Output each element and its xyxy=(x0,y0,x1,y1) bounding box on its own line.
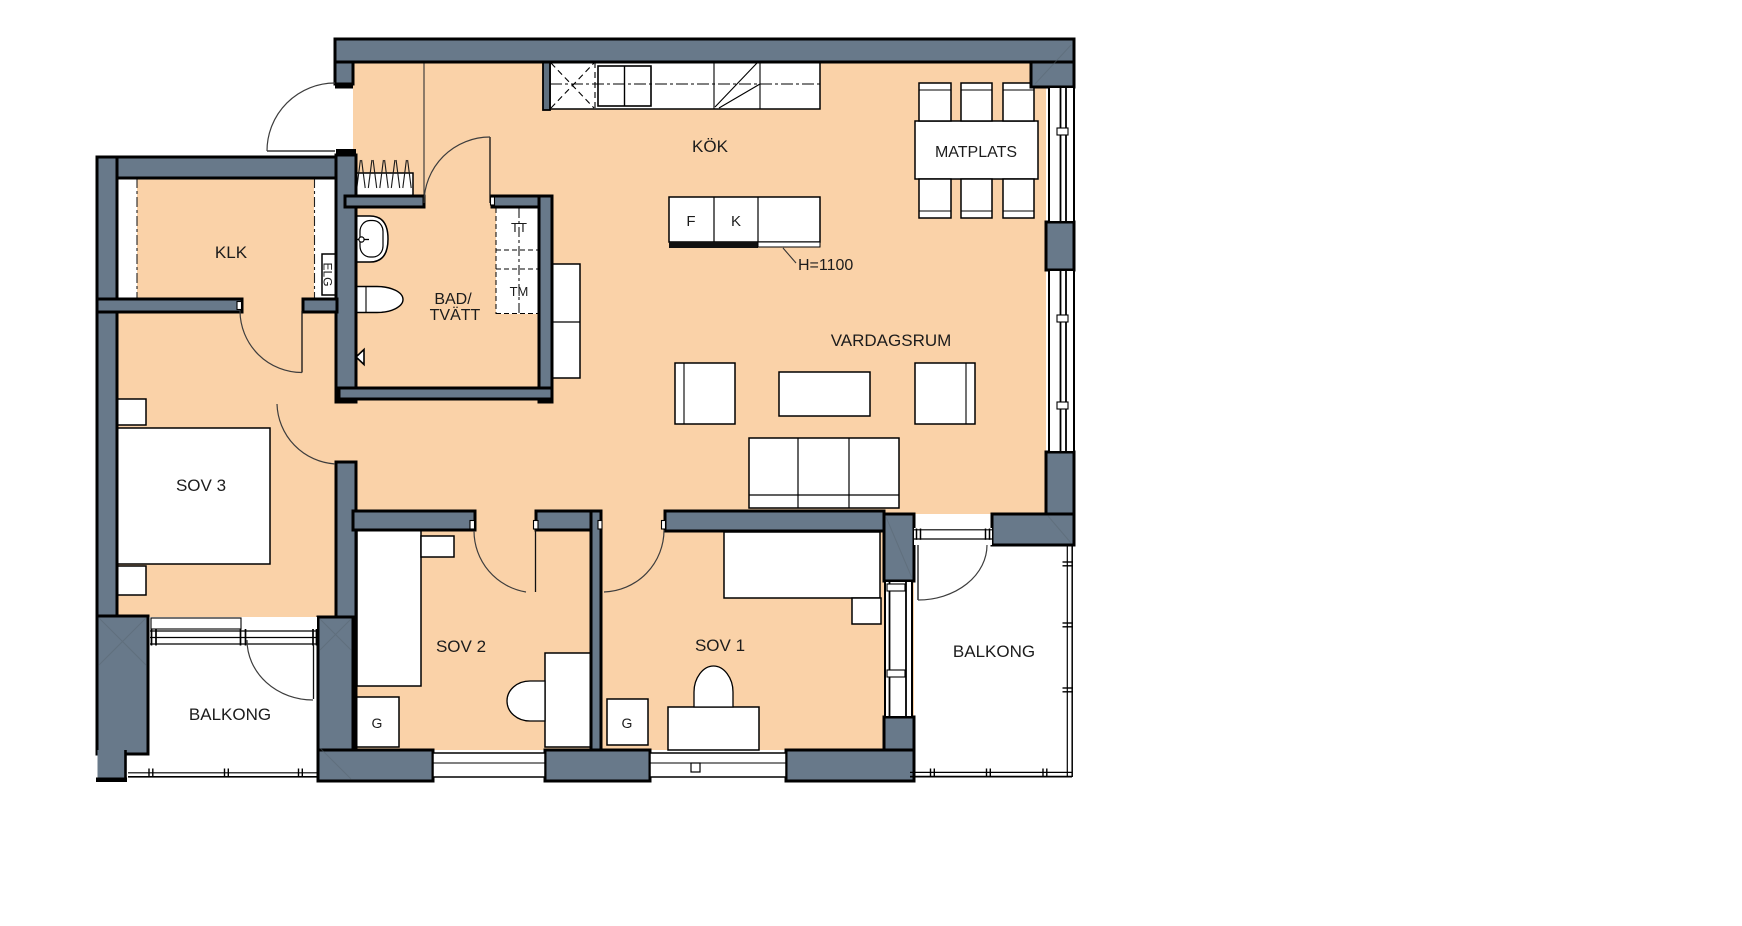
svg-text:H=1100: H=1100 xyxy=(798,257,853,274)
svg-text:G: G xyxy=(372,715,383,731)
svg-text:TVÄTT: TVÄTT xyxy=(430,306,481,324)
svg-text:BAD/: BAD/ xyxy=(434,291,472,308)
svg-text:SOV 2: SOV 2 xyxy=(436,637,486,656)
svg-text:SOV 1: SOV 1 xyxy=(695,636,745,655)
svg-text:TM: TM xyxy=(510,284,529,299)
svg-text:F: F xyxy=(686,213,695,230)
svg-text:G: G xyxy=(622,715,633,731)
svg-text:TT: TT xyxy=(511,220,527,235)
svg-text:K: K xyxy=(731,213,741,230)
svg-text:BALKONG: BALKONG xyxy=(953,642,1035,661)
svg-text:ELG: ELG xyxy=(321,262,335,286)
svg-text:BALKONG: BALKONG xyxy=(189,705,271,724)
svg-text:SOV 3: SOV 3 xyxy=(176,476,226,495)
svg-text:VARDAGSRUM: VARDAGSRUM xyxy=(831,331,952,350)
svg-text:KÖK: KÖK xyxy=(692,137,729,156)
svg-text:MATPLATS: MATPLATS xyxy=(935,144,1017,161)
svg-text:KLK: KLK xyxy=(215,243,248,262)
